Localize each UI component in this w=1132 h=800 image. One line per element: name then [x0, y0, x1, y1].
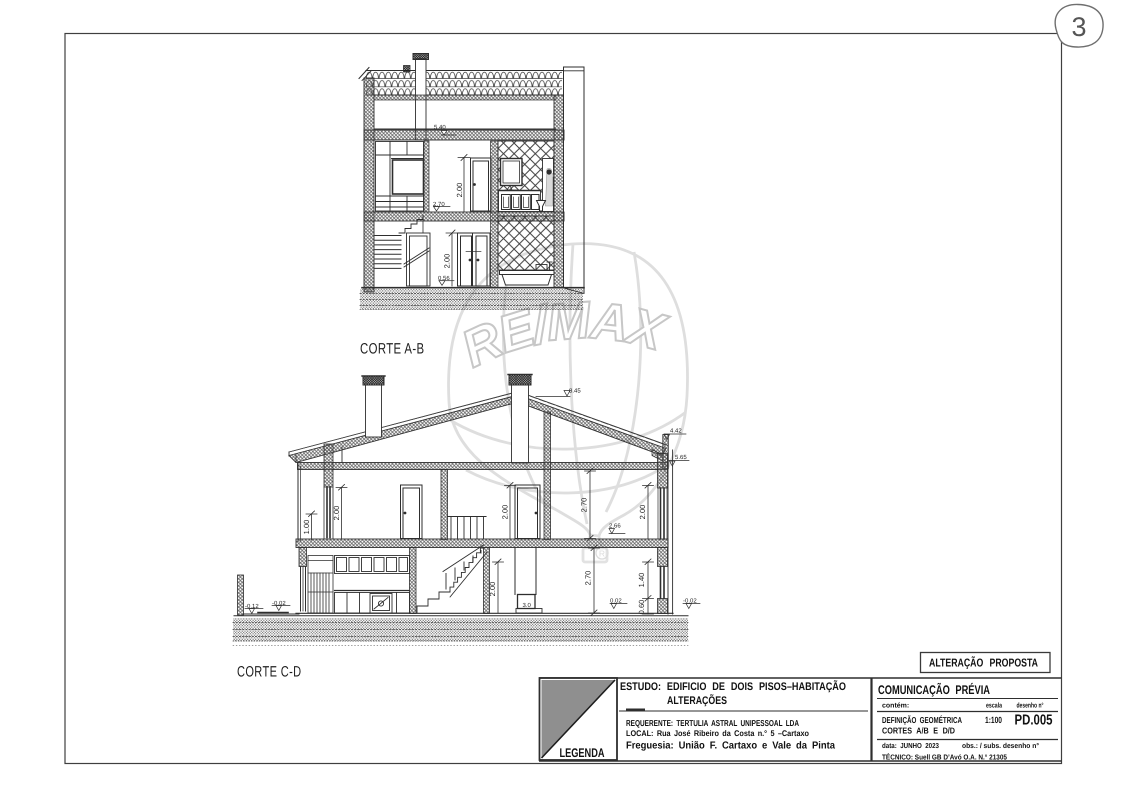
- svg-text:1.40: 1.40: [637, 573, 646, 588]
- svg-text:obs.: / subs. desenho n°: obs.: / subs. desenho n°: [962, 741, 1039, 750]
- svg-text:desenho n°: desenho n°: [1017, 702, 1044, 710]
- svg-text:2.00: 2.00: [501, 505, 510, 520]
- svg-text:0.60: 0.60: [637, 600, 646, 615]
- svg-text:data: JUNHO 2023: data: JUNHO 2023: [882, 741, 939, 750]
- svg-text:5.40: 5.40: [434, 124, 446, 131]
- svg-text:ALTERAÇÃO PROPOSTA: ALTERAÇÃO PROPOSTA: [929, 656, 1038, 670]
- svg-text:2.00: 2.00: [455, 183, 464, 198]
- svg-text:LEGENDA: LEGENDA: [560, 746, 605, 760]
- svg-text:contém:: contém:: [882, 702, 909, 710]
- svg-text:1:100: 1:100: [985, 715, 1002, 725]
- svg-text:escala: escala: [986, 702, 1002, 710]
- svg-text:ALTERAÇÕES: ALTERAÇÕES: [667, 694, 727, 707]
- svg-text:Freguesia: União F. Cartaxo e: Freguesia: União F. Cartaxo e Vale da Pi…: [626, 741, 835, 752]
- svg-text:PD.005: PD.005: [1015, 713, 1053, 729]
- svg-text:2.00: 2.00: [488, 582, 497, 597]
- svg-text:R: R: [599, 549, 605, 559]
- svg-text:CORTE C-D: CORTE C-D: [237, 664, 302, 681]
- svg-text:REQUERENTE: TERTULIA ASTRAL UN: REQUERENTE: TERTULIA ASTRAL UNIPESSOAL L…: [626, 718, 799, 728]
- svg-text:4.42: 4.42: [670, 428, 682, 435]
- svg-text:ESTUDO: EDIFICIO DE DOIS PISOS: ESTUDO: EDIFICIO DE DOIS PISOS–HABITAÇÃO: [620, 680, 846, 693]
- svg-text:-0.12: -0.12: [245, 603, 259, 610]
- svg-text:2.00: 2.00: [443, 254, 452, 269]
- svg-text:DEFINIÇÃO GEOMÉTRICA: DEFINIÇÃO GEOMÉTRICA: [882, 715, 962, 725]
- svg-text:2.00: 2.00: [332, 506, 341, 521]
- svg-text:2.70: 2.70: [580, 498, 589, 513]
- svg-text:CORTE A-B: CORTE A-B: [360, 341, 425, 358]
- svg-text:3.0: 3.0: [523, 602, 532, 609]
- svg-text:LOCAL: Rua José Ribeiro da Cos: LOCAL: Rua José Ribeiro da Costa n.° 5 –…: [626, 729, 809, 738]
- svg-text:2.70: 2.70: [584, 571, 593, 586]
- svg-text:3: 3: [1071, 12, 1086, 42]
- svg-text:8.45: 8.45: [569, 388, 581, 395]
- svg-text:CORTES A/B E D/D: CORTES A/B E D/D: [882, 726, 955, 736]
- svg-text:-0.02: -0.02: [272, 600, 286, 607]
- svg-text:COMUNICAÇÃO PRÉVIA: COMUNICAÇÃO PRÉVIA: [878, 682, 990, 697]
- svg-text:5.65: 5.65: [675, 454, 687, 461]
- svg-text:1.00: 1.00: [302, 520, 311, 535]
- svg-text:TÉCNICO: Suell GB D’Avó O.A.: TÉCNICO: Suell GB D’Avó O.A. N.° 21305: [882, 753, 1007, 762]
- svg-text:2.00: 2.00: [638, 505, 647, 520]
